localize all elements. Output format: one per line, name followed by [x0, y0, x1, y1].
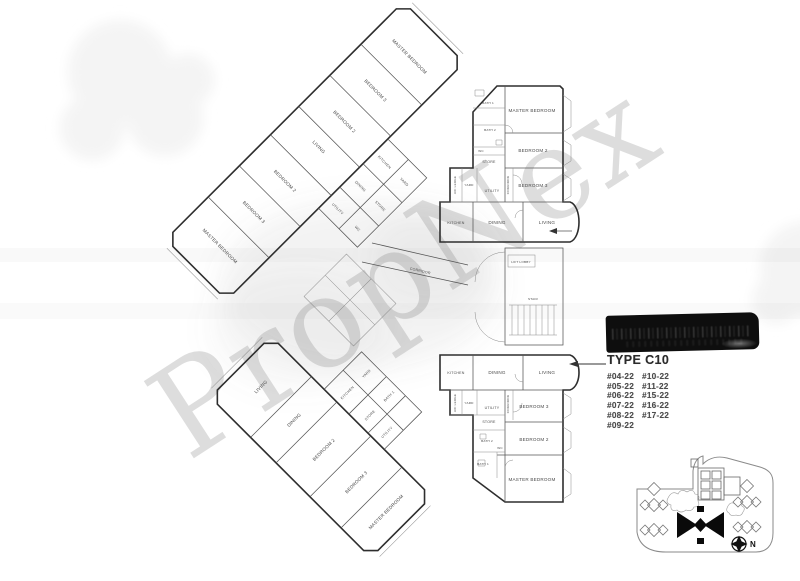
site-plan: N	[637, 456, 773, 553]
room-label: MASTER BEDROOM	[509, 477, 556, 482]
room-label: BEDROOM 2	[518, 148, 548, 153]
room-label: BATH 1	[383, 390, 395, 402]
room-label: CORRIDOR	[506, 394, 510, 413]
room-label: BEDROOM 3	[518, 183, 548, 188]
room-label: KITCHEN	[447, 371, 464, 375]
door-arcs	[505, 374, 523, 468]
room-label: WC	[478, 149, 484, 153]
room-label: MASTER BEDROOM	[509, 108, 556, 113]
room-label: YARD	[464, 183, 474, 187]
room-label: BEDROOM 3	[242, 200, 266, 224]
unit-number: #17-22	[642, 411, 669, 421]
room-label: UTILITY	[485, 406, 500, 410]
room-label: BEDROOM 3	[344, 470, 368, 494]
room-label: UTILITY	[485, 189, 500, 193]
room-label: STORE	[482, 160, 496, 164]
room-label: BATH 2	[484, 128, 496, 132]
redbar-faint-text-texture	[612, 325, 751, 339]
unit-number-list: #04-22 #05-22 #06-22 #07-22 #08-22 #09-2…	[607, 372, 727, 430]
room-label: BATH 2	[481, 439, 493, 443]
leader-arrow-icon	[569, 361, 578, 367]
room-label: A/C LEDGE	[453, 394, 457, 412]
room-label: LIVING	[311, 140, 326, 155]
room-label: STAIR	[528, 297, 538, 301]
room-label: BEDROOM 2	[519, 437, 549, 442]
room-label: MASTER BEDROOM	[391, 38, 428, 75]
room-label: CORRIDOR	[506, 175, 510, 194]
room-label: BEDROOM 3	[519, 404, 549, 409]
room-label: BEDROOM 2	[273, 169, 297, 193]
north-label: N	[750, 540, 756, 549]
room-label: BEDROOM 3	[363, 78, 387, 102]
room-label: LIFT LOBBY	[511, 260, 530, 264]
room-label: LIVING	[539, 220, 555, 225]
bay-window-bumps	[563, 393, 571, 499]
room-label: UTILITY	[380, 426, 394, 440]
room-label: MASTER BEDROOM	[368, 494, 405, 531]
room-label: A/C LEDGE	[453, 176, 457, 194]
room-label: BEDROOM 2	[332, 110, 356, 134]
redacted-development-name-bar	[606, 312, 760, 353]
room-label: BATH 1	[482, 101, 494, 105]
redbar-glare	[721, 338, 757, 349]
type-annotation-block: TYPE C10 #04-22 #05-22 #06-22 #07-22 #08…	[607, 353, 727, 430]
room-label: DINING	[354, 180, 367, 193]
room-label: STORE	[482, 420, 496, 424]
room-label: BATH 1	[477, 462, 489, 466]
unit-number: #09-22	[607, 421, 634, 431]
unit-lower-right: KITCHEN DINING LIVING BEDROOM 3 BEDROOM …	[440, 355, 579, 502]
room-label: YARD	[464, 401, 474, 405]
room-label: DINING	[488, 220, 506, 225]
room-label: LIVING	[539, 370, 555, 375]
floor-plan-canvas: PropNex MASTER BEDROOM BEDROOM 3 BEDROOM…	[0, 0, 800, 581]
floor-plan-page: PropNex MASTER BEDROOM BEDROOM 3 BEDROOM…	[0, 0, 800, 581]
room-label: BEDROOM 2	[312, 437, 336, 461]
room-label: KITCHEN	[377, 155, 392, 170]
unit-number-column-2: #10-22 #11-22 #15-22 #16-22 #17-22	[642, 372, 669, 430]
room-label: KITCHEN	[447, 221, 464, 225]
unit-number-column-1: #04-22 #05-22 #06-22 #07-22 #08-22 #09-2…	[607, 372, 634, 430]
unit-type-label: TYPE C10	[607, 353, 727, 367]
room-label: DINING	[488, 370, 506, 375]
room-label: WC	[497, 446, 503, 450]
type-leader	[569, 361, 606, 367]
room-label: STORE	[364, 409, 377, 422]
